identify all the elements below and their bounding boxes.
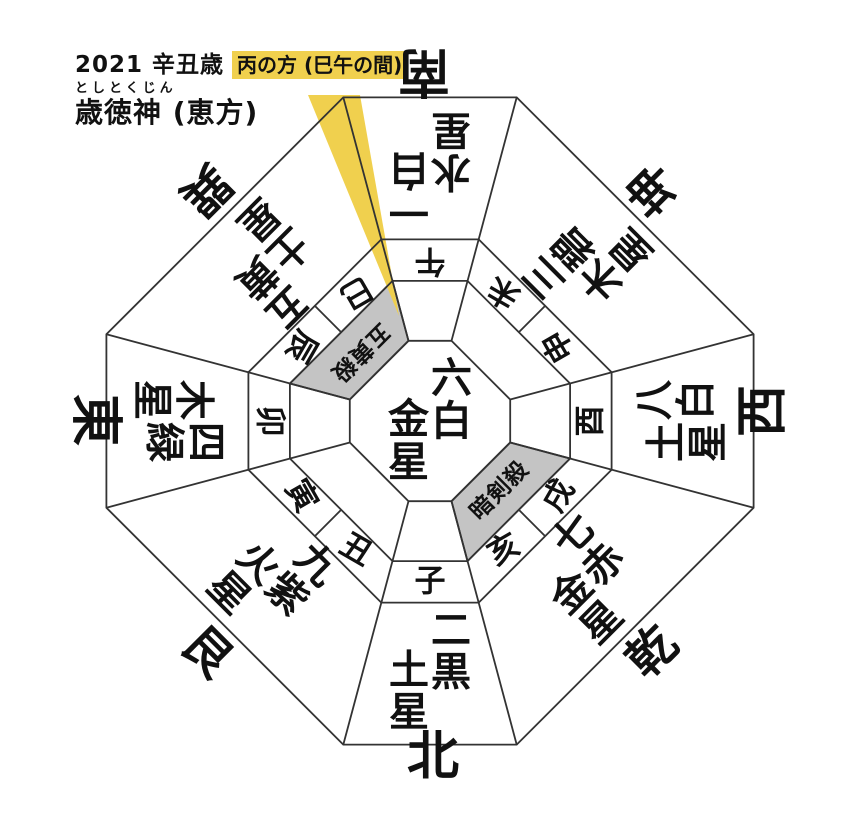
direction-label-east: 東 — [69, 394, 121, 446]
star-name-block: 土星八白 — [634, 380, 731, 462]
header: 2021 辛丑歳丙の方 (巳午の間) としとくじん 歳徳神 (恵方) — [75, 52, 407, 130]
year-label: 2021 辛丑歳 — [75, 52, 224, 78]
star-name-block: 金星六白 — [388, 357, 472, 485]
star-label-west: 土星八白 — [634, 380, 731, 462]
star-label-east: 木星四緑 — [130, 380, 227, 462]
zodiac-label-tori: 酉 — [576, 406, 607, 437]
furigana-label: としとくじん — [75, 82, 407, 97]
star-label-south: 水星一白 — [389, 108, 471, 233]
zodiac-label-uma: 午 — [415, 245, 446, 276]
direction-label-west: 西 — [737, 385, 789, 437]
direction-label-north: 北 — [407, 731, 459, 783]
star-name-block: 土星二黒 — [389, 610, 471, 735]
zodiac-label-u: 卯 — [254, 406, 285, 437]
star-label-north: 土星二黒 — [389, 610, 471, 735]
star-name-block: 木星四緑 — [130, 380, 227, 462]
direction-label-south: 南 — [398, 45, 450, 97]
zodiac-label-ne: 子 — [415, 567, 446, 598]
star-name-block: 水星一白 — [389, 108, 471, 233]
page-title: 歳徳神 (恵方) — [75, 97, 407, 129]
center-star-label: 金星六白 — [388, 357, 472, 485]
header-year-line: 2021 辛丑歳丙の方 (巳午の間) — [75, 52, 407, 78]
eho-direction-highlight: 丙の方 (巳午の間) — [232, 51, 407, 79]
eho-chart-page: 2021 辛丑歳丙の方 (巳午の間) としとくじん 歳徳神 (恵方) 南水星一白… — [0, 0, 850, 825]
